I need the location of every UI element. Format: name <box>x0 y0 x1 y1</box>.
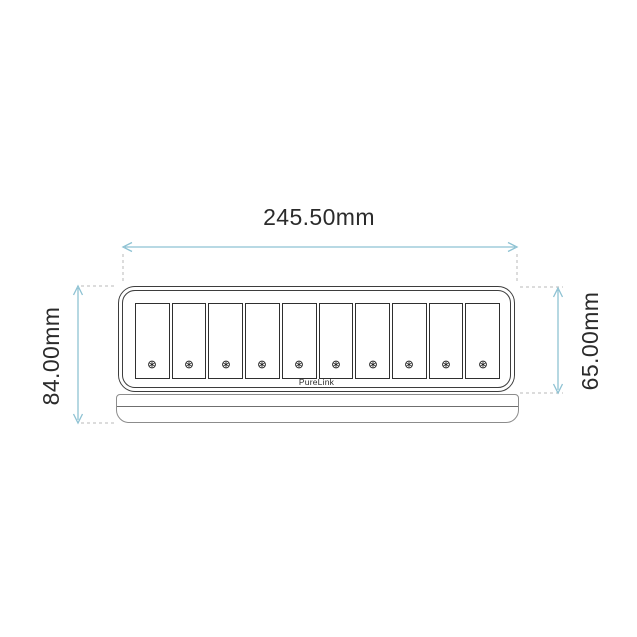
screw-icon <box>368 360 377 369</box>
module-slot <box>355 303 390 379</box>
body-height-dimension-arrow <box>554 288 563 393</box>
module-slot <box>465 303 500 379</box>
base-groove-line <box>117 406 518 407</box>
module-slot <box>392 303 427 379</box>
technical-drawing: 245.50mm 84.00mm 65.00mm <box>0 0 637 637</box>
device-front-panel: PureLink <box>118 286 515 392</box>
screw-icon <box>148 360 157 369</box>
screw-icon <box>185 360 194 369</box>
screw-icon <box>258 360 267 369</box>
screw-icon <box>331 360 340 369</box>
device-base <box>116 394 519 423</box>
screw-icon <box>441 360 450 369</box>
module-slot <box>245 303 280 379</box>
module-slot <box>429 303 464 379</box>
screw-icon <box>478 360 487 369</box>
module-slot <box>135 303 170 379</box>
module-slot <box>282 303 317 379</box>
module-slot-row <box>135 303 500 379</box>
body-height-dimension-label: 65.00mm <box>577 281 603 401</box>
screw-icon <box>221 360 230 369</box>
width-dimension-arrow <box>123 243 517 252</box>
brand-label: PureLink <box>123 377 510 387</box>
module-slot <box>208 303 243 379</box>
module-slot <box>172 303 207 379</box>
screw-icon <box>405 360 414 369</box>
module-slot <box>319 303 354 379</box>
screw-icon <box>295 360 304 369</box>
overall-height-dimension-label: 84.00mm <box>38 296 64 416</box>
device-inner-frame: PureLink <box>122 290 511 388</box>
overall-height-dimension-arrow <box>74 286 83 423</box>
width-dimension-label: 245.50mm <box>239 204 399 231</box>
